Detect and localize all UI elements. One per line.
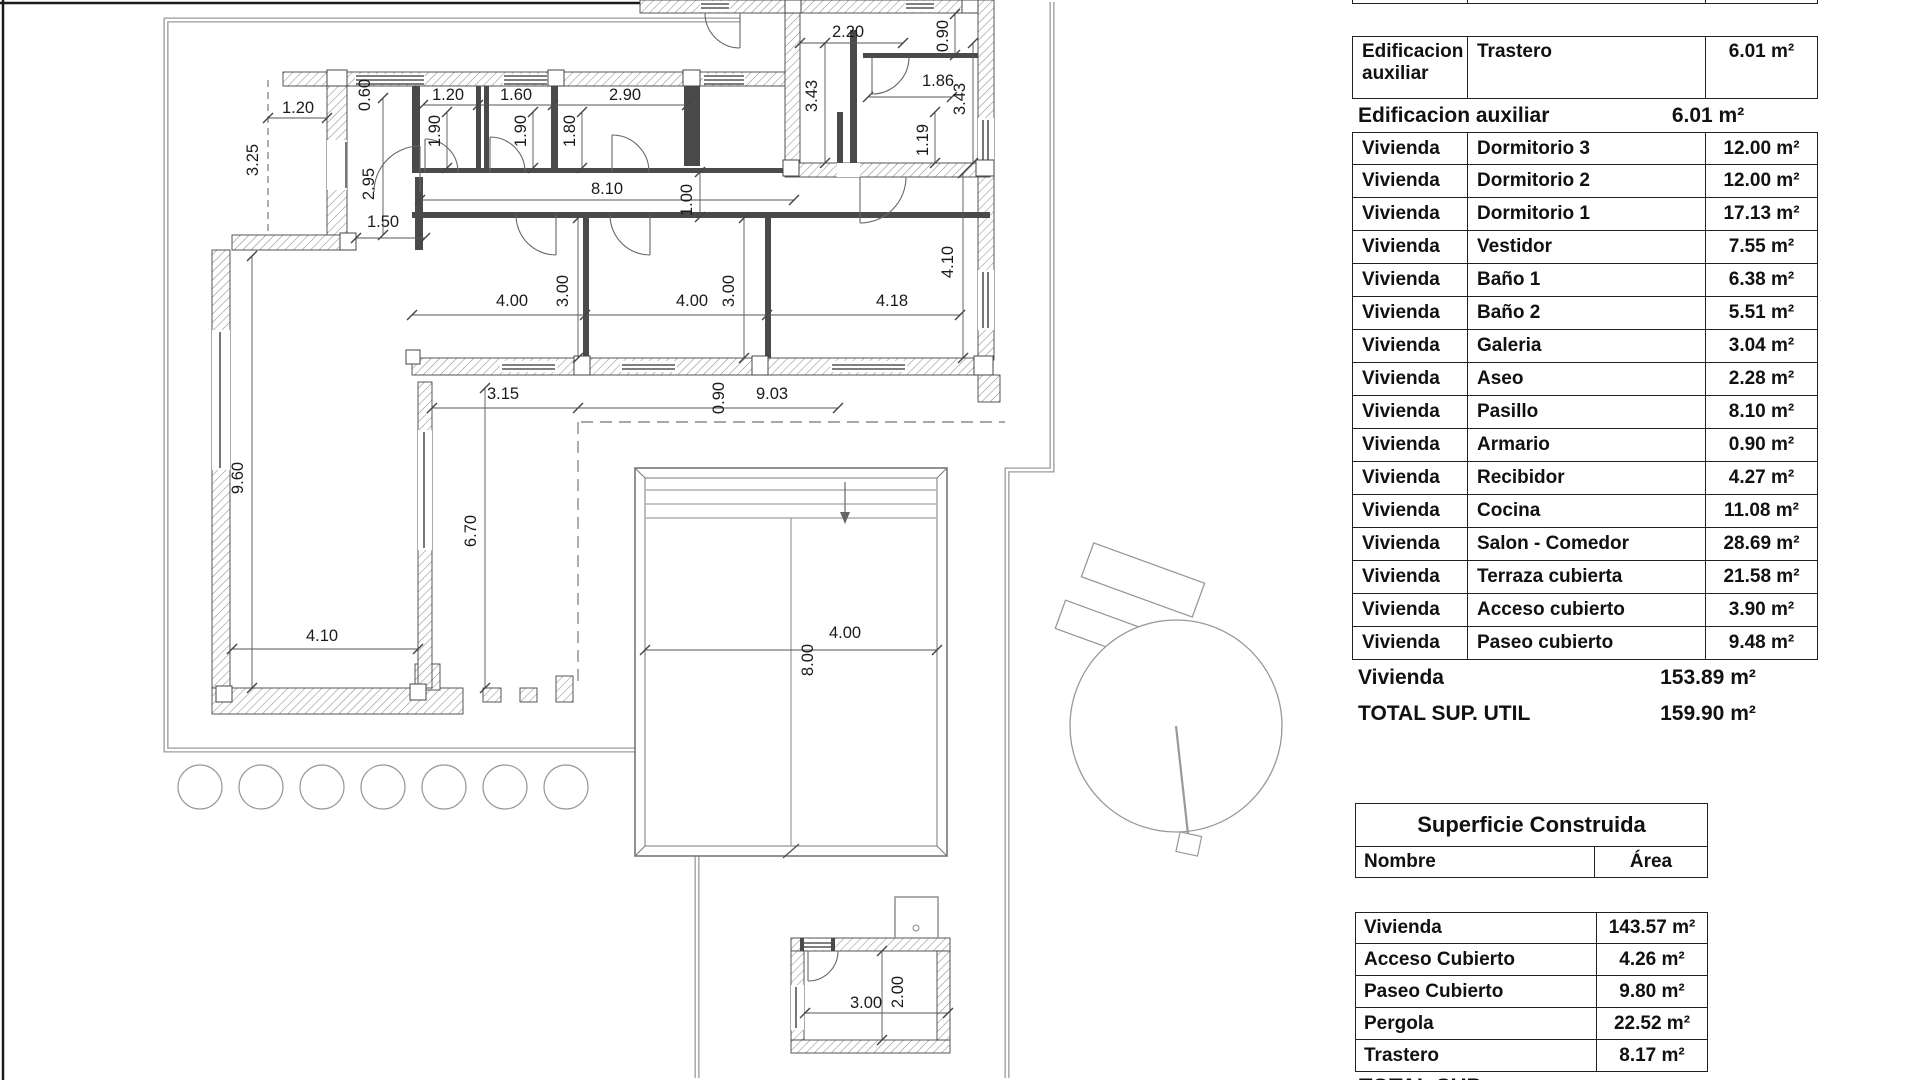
table-cell: Vivienda bbox=[1352, 297, 1467, 330]
table-cell: Acceso cubierto bbox=[1467, 594, 1705, 627]
table-row: ViviendaRecibidor4.27 m² bbox=[1352, 462, 1818, 495]
dimension-label: 3.00 bbox=[554, 275, 572, 307]
table-cell: 8.10 m² bbox=[1705, 396, 1818, 429]
dimension-label: 4.00 bbox=[676, 292, 708, 310]
dimension-label: 0.90 bbox=[710, 382, 728, 414]
table-cell: 11.08 m² bbox=[1705, 495, 1818, 528]
dimension-label: 4.00 bbox=[829, 624, 861, 642]
dimension-label: 1.20 bbox=[282, 99, 314, 117]
table-cell: Vivienda bbox=[1352, 198, 1467, 231]
total-util-row: TOTAL SUP. UTIL 159.90 m² bbox=[1352, 696, 1818, 732]
table-cell: Vivienda bbox=[1352, 594, 1467, 627]
total-util-value: 159.90 m² bbox=[1598, 702, 1818, 726]
table-cell: 0.90 m² bbox=[1705, 429, 1818, 462]
table-cell: 28.69 m² bbox=[1705, 528, 1818, 561]
dimension-label: 4.18 bbox=[876, 292, 908, 310]
total-util-label: TOTAL SUP. UTIL bbox=[1352, 702, 1598, 726]
table-cell: Armario bbox=[1467, 429, 1705, 462]
table-cell: 6.38 m² bbox=[1705, 264, 1818, 297]
table-cell: Aseo bbox=[1467, 363, 1705, 396]
dimension-label: 1.90 bbox=[512, 115, 530, 147]
aux-building-row: Edificacion auxiliar Trastero 6.01 m² bbox=[1352, 36, 1818, 99]
built-header-area: Área bbox=[1594, 847, 1707, 877]
table-cell: 7.55 m² bbox=[1705, 231, 1818, 264]
dimension-label: 1.19 bbox=[914, 124, 932, 156]
table-cell: 9.48 m² bbox=[1705, 627, 1818, 660]
table-cell: 3.90 m² bbox=[1705, 594, 1818, 627]
table-row: ViviendaCocina11.08 m² bbox=[1352, 495, 1818, 528]
table-cell: 4.26 m² bbox=[1596, 944, 1708, 976]
table-row: ViviendaAseo2.28 m² bbox=[1352, 363, 1818, 396]
table-row: ViviendaPasillo8.10 m² bbox=[1352, 396, 1818, 429]
table-cell: Galeria bbox=[1467, 330, 1705, 363]
table-row: ViviendaDormitorio 117.13 m² bbox=[1352, 198, 1818, 231]
table-row: ViviendaDormitorio 212.00 m² bbox=[1352, 165, 1818, 198]
table-cell: Dormitorio 2 bbox=[1467, 165, 1705, 198]
table-cell: Trastero bbox=[1355, 1040, 1596, 1072]
table-cell: Dormitorio 1 bbox=[1467, 198, 1705, 231]
table-cell: Vivienda bbox=[1352, 462, 1467, 495]
table-cell: 9.80 m² bbox=[1596, 976, 1708, 1008]
table-cell: 143.57 m² bbox=[1596, 912, 1708, 944]
dimension-label: 2.00 bbox=[889, 976, 907, 1008]
table-cell: 12.00 m² bbox=[1705, 165, 1818, 198]
table-row: Paseo Cubierto9.80 m² bbox=[1355, 976, 1708, 1008]
table-cell: 12.00 m² bbox=[1705, 132, 1818, 165]
useful-areas-table: Edificacion Nombre Área Edificacion auxi… bbox=[1352, 0, 1818, 744]
table-cell: Vestidor bbox=[1467, 231, 1705, 264]
table-row: ViviendaSalon - Comedor28.69 m² bbox=[1352, 528, 1818, 561]
dimension-label: 9.03 bbox=[756, 385, 788, 403]
table-row: ViviendaVestidor7.55 m² bbox=[1352, 231, 1818, 264]
table-row: ViviendaBaño 16.38 m² bbox=[1352, 264, 1818, 297]
dimension-label: 3.00 bbox=[720, 275, 738, 307]
dimension-label: 2.20 bbox=[832, 23, 864, 41]
dimension-label: 1.00 bbox=[678, 184, 696, 216]
table-row: ViviendaAcceso cubierto3.90 m² bbox=[1352, 594, 1818, 627]
dimension-label: 3.43 bbox=[951, 83, 969, 115]
aux-summary-label: Edificacion auxiliar bbox=[1352, 104, 1598, 128]
table-cell: 3.04 m² bbox=[1705, 330, 1818, 363]
table-cell: Baño 1 bbox=[1467, 264, 1705, 297]
table-cell: Vivienda bbox=[1352, 264, 1467, 297]
built-area-title: Superficie Construida bbox=[1355, 803, 1708, 847]
total-construida-row: TOTAL SUP. CONSTRUIDA 188.32 m² bbox=[1355, 1074, 1708, 1080]
dimension-label: 8.10 bbox=[591, 180, 623, 198]
vivienda-summary-value: 153.89 m² bbox=[1598, 666, 1818, 690]
floor-plan-sheet: 1.203.250.601.201.901.601.901.802.908.10… bbox=[0, 0, 1920, 1080]
vivienda-summary-label: Vivienda bbox=[1352, 666, 1598, 690]
dimension-label: 1.80 bbox=[561, 115, 579, 147]
aux-room-cell: Trastero bbox=[1467, 36, 1705, 99]
dimension-label: 9.60 bbox=[229, 462, 247, 494]
table-row: ViviendaBaño 25.51 m² bbox=[1352, 297, 1818, 330]
total-construida-label: TOTAL SUP. CONSTRUIDA bbox=[1355, 1074, 1558, 1080]
dimension-label: 1.50 bbox=[367, 213, 399, 231]
table-row: Vivienda143.57 m² bbox=[1355, 912, 1708, 944]
table-cell: Recibidor bbox=[1467, 462, 1705, 495]
dimension-label: 0.60 bbox=[356, 79, 374, 111]
dimension-label: 2.95 bbox=[360, 168, 378, 200]
dimension-label: 0.90 bbox=[934, 20, 952, 52]
table-row: ViviendaArmario0.90 m² bbox=[1352, 429, 1818, 462]
dimension-label: 1.90 bbox=[426, 115, 444, 147]
table-cell: Vivienda bbox=[1352, 528, 1467, 561]
aux-summary-row: Edificacion auxiliar 6.01 m² bbox=[1352, 99, 1818, 132]
table-cell: Baño 2 bbox=[1467, 297, 1705, 330]
table-cell: 5.51 m² bbox=[1705, 297, 1818, 330]
table-cell: Dormitorio 3 bbox=[1467, 132, 1705, 165]
table-row: ViviendaTerraza cubierta21.58 m² bbox=[1352, 561, 1818, 594]
table-row: Acceso Cubierto4.26 m² bbox=[1355, 944, 1708, 976]
table-cell: Vivienda bbox=[1352, 495, 1467, 528]
dimension-label: 6.70 bbox=[462, 515, 480, 547]
table-cell: 22.52 m² bbox=[1596, 1008, 1708, 1040]
table-row: Pergola22.52 m² bbox=[1355, 1008, 1708, 1040]
table-cell: 17.13 m² bbox=[1705, 198, 1818, 231]
table-cell: Vivienda bbox=[1352, 132, 1467, 165]
table-cell: Vivienda bbox=[1352, 396, 1467, 429]
built-header-nombre: Nombre bbox=[1356, 847, 1594, 877]
table-cell: Vivienda bbox=[1352, 231, 1467, 264]
table-cell: Vivienda bbox=[1352, 330, 1467, 363]
table-cell: Pasillo bbox=[1467, 396, 1705, 429]
aux-area-cell: 6.01 m² bbox=[1705, 36, 1818, 99]
dimension-label: 8.00 bbox=[799, 644, 817, 676]
aux-summary-value: 6.01 m² bbox=[1598, 104, 1818, 128]
dimension-label: 3.25 bbox=[244, 144, 262, 176]
table-cell: 4.27 m² bbox=[1705, 462, 1818, 495]
built-area-table: Superficie Construida Nombre Área Vivien… bbox=[1355, 803, 1708, 1080]
aux-building-cell: Edificacion auxiliar bbox=[1352, 36, 1467, 99]
table-cell: Paseo Cubierto bbox=[1355, 976, 1596, 1008]
dimension-label: 1.60 bbox=[500, 86, 532, 104]
built-area-header: Nombre Área bbox=[1355, 847, 1708, 878]
table-cell: Terraza cubierta bbox=[1467, 561, 1705, 594]
table-cell: Paseo cubierto bbox=[1467, 627, 1705, 660]
dimension-label: 1.86 bbox=[922, 72, 954, 90]
dimension-label: 3.00 bbox=[850, 994, 882, 1012]
dimension-label: 2.90 bbox=[609, 86, 641, 104]
table-row: ViviendaGaleria3.04 m² bbox=[1352, 330, 1818, 363]
table-cell: Vivienda bbox=[1355, 912, 1596, 944]
table-cell: 2.28 m² bbox=[1705, 363, 1818, 396]
table-cell: Vivienda bbox=[1352, 165, 1467, 198]
table-cell: Cocina bbox=[1467, 495, 1705, 528]
table-cell: 21.58 m² bbox=[1705, 561, 1818, 594]
vivienda-summary-row: Vivienda 153.89 m² bbox=[1352, 660, 1818, 696]
table-row: ViviendaPaseo cubierto9.48 m² bbox=[1352, 627, 1818, 660]
table-cell: Vivienda bbox=[1352, 561, 1467, 594]
dimension-label: 4.00 bbox=[496, 292, 528, 310]
table-cell: Salon - Comedor bbox=[1467, 528, 1705, 561]
dimension-label: 3.15 bbox=[487, 385, 519, 403]
table-row: Trastero8.17 m² bbox=[1355, 1040, 1708, 1072]
header-edificacion: Edificacion bbox=[1352, 0, 1467, 4]
header-nombre: Nombre bbox=[1467, 0, 1705, 4]
table-cell: Pergola bbox=[1355, 1008, 1596, 1040]
dimension-label: 3.43 bbox=[803, 80, 821, 112]
dimension-label: 1.20 bbox=[432, 86, 464, 104]
dimension-label: 4.10 bbox=[939, 246, 957, 278]
table-cell: Acceso Cubierto bbox=[1355, 944, 1596, 976]
table-row: ViviendaDormitorio 312.00 m² bbox=[1352, 132, 1818, 165]
table-cell: Vivienda bbox=[1352, 627, 1467, 660]
dimension-label: 4.10 bbox=[306, 627, 338, 645]
header-area: Área bbox=[1705, 0, 1818, 4]
table-cell: 8.17 m² bbox=[1596, 1040, 1708, 1072]
table-cell: Vivienda bbox=[1352, 429, 1467, 462]
table-header-row: Edificacion Nombre Área bbox=[1352, 0, 1818, 4]
table-cell: Vivienda bbox=[1352, 363, 1467, 396]
